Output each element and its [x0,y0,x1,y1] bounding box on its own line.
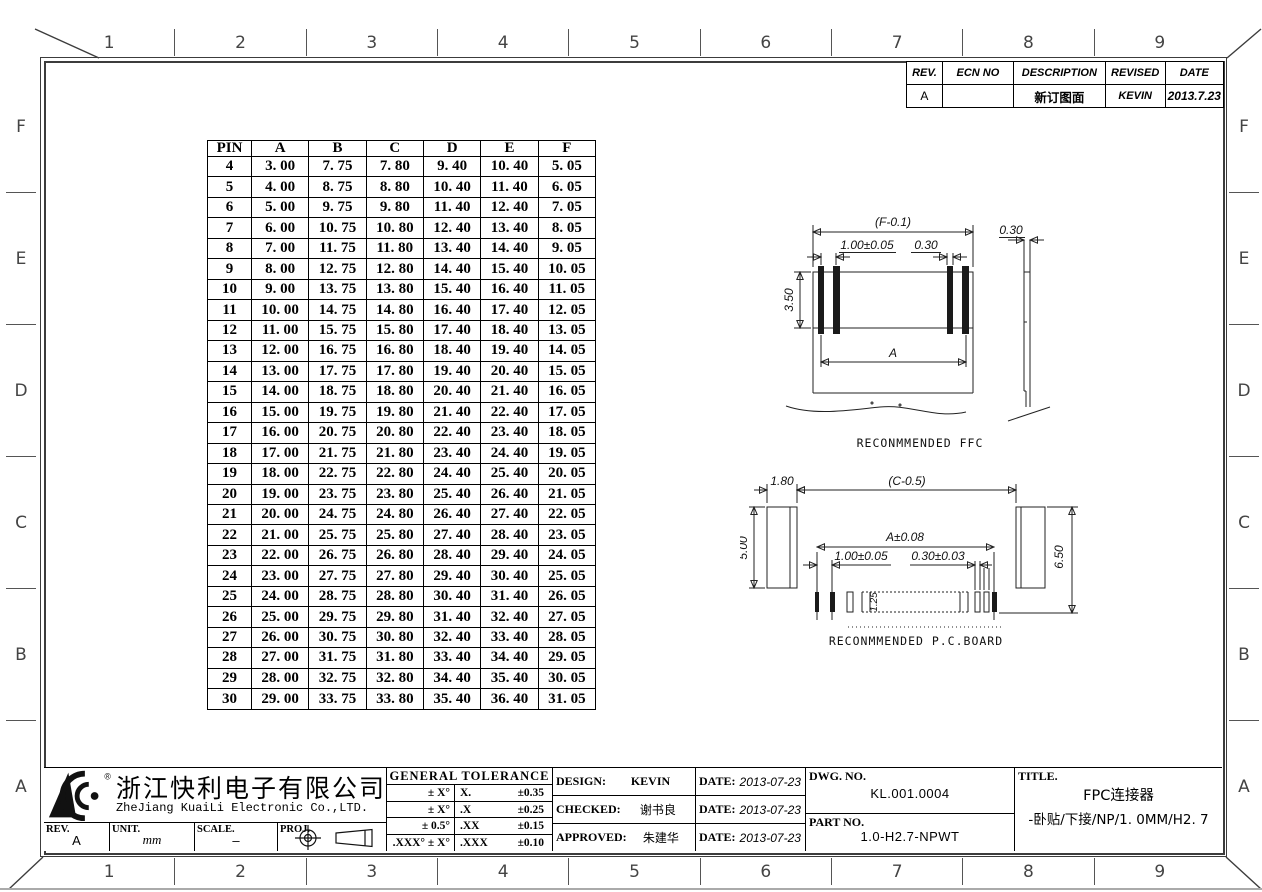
pin-table-row: 3029. 0033. 7533. 8035. 4036. 4031. 05 [208,689,596,710]
tolerance-decimals: .XX [460,820,494,832]
pin-table-cell: 20. 75 [309,423,366,443]
approved-label: APPROVED: [553,830,627,845]
pin-table-cell: 25. 05 [538,566,595,586]
zone-column-label: 6 [701,29,832,56]
pin-table-cell: 24. 40 [423,464,480,484]
pin-table-cell: 11 [208,300,252,320]
unit-cell: UNIT. mm [110,823,195,851]
zone-column-label: 4 [438,858,569,885]
pin-table-cell: 19. 75 [309,402,366,422]
pin-table-cell: 10. 00 [252,300,309,320]
zone-column-label: 7 [832,29,963,56]
pin-table-cell: 26. 80 [366,545,423,565]
revision-column-header: DATE [1165,62,1223,85]
pin-table-cell: 28. 00 [252,668,309,688]
pin-table-cell: 27 [208,627,252,647]
design-date: 2013-07-23 [735,775,805,789]
pcb-total-height-dim: 6.50 [1052,545,1066,569]
title-label: TITLE. [1018,769,1058,784]
pin-table-cell: 28. 40 [481,525,538,545]
pcb-overall-dim: (C-0.5) [888,474,925,488]
scale-cell: SCALE. – [195,823,278,851]
pin-table-cell: 15. 00 [252,402,309,422]
pin-table-cell: 7. 00 [252,238,309,258]
pin-table-row: 2625. 0029. 7529. 8031. 4032. 4027. 05 [208,607,596,627]
zone-row-label: D [6,325,36,457]
pin-table-cell: 28 [208,648,252,668]
company-logo-icon: ® [46,769,116,821]
pin-table-cell: 22. 40 [423,423,480,443]
pin-table-cell: 14. 05 [538,341,595,361]
pcb-figure-caption: RECONMMENDED P.C.BOARD [829,634,1003,648]
pin-table-cell: 20. 40 [423,382,480,402]
projection-cell: PROJ. [278,823,386,851]
date-label: DATE: [696,774,735,789]
zone-column-label: 8 [963,858,1094,885]
revision-cell: 2013.7.23 [1165,85,1223,108]
pin-table-cell: 13 [208,341,252,361]
pin-table-cell: 25. 00 [252,607,309,627]
pin-table-cell: 21. 80 [366,443,423,463]
zone-ruler-top: 123456789 [44,29,1225,56]
checked-label: CHECKED: [553,802,621,817]
pin-table-cell: 23. 00 [252,566,309,586]
pin-table-cell: 19. 80 [366,402,423,422]
pcb-pad-width-dim: 0.30±0.03 [911,549,965,563]
pin-table-cell: 29. 05 [538,648,595,668]
pin-table-cell: 21. 05 [538,484,595,504]
pin-table-cell: 25 [208,586,252,606]
pin-table-cell: 21. 00 [252,525,309,545]
pin-table-cell: 12. 40 [423,218,480,238]
ffc-span-dim: A [888,346,897,360]
pin-table-cell: 18. 00 [252,464,309,484]
revision-column-header: DESCRIPTION [1013,62,1105,85]
pin-table-cell: 27. 75 [309,566,366,586]
pin-table-cell: 5. 05 [538,157,595,177]
checked-date: 2013-07-23 [735,803,805,817]
zone-ruler-right: FEDCBA [1229,61,1259,852]
title-block: ® 浙江快利电子有限公司 ZheJiang KuaiLi Electronic … [44,767,1222,851]
pin-table-cell: 16. 75 [309,341,366,361]
pin-table-cell: 31. 75 [309,648,366,668]
pin-table-cell: 15. 40 [423,279,480,299]
pin-table-row: 109. 0013. 7513. 8015. 4016. 4011. 05 [208,279,596,299]
pin-table-row: 2827. 0031. 7531. 8033. 4034. 4029. 05 [208,648,596,668]
tolerance-row: ± 0.5°.XX±0.15 [387,817,552,834]
pin-table-cell: 6. 05 [538,177,595,197]
pin-table-cell: 16. 05 [538,382,595,402]
pin-table-cell: 33. 80 [366,689,423,710]
pcb-end-width-dim: 1.80 [770,474,794,488]
pin-table-row: 87. 0011. 7511. 8013. 4014. 409. 05 [208,238,596,258]
pin-table-cell: 27. 00 [252,648,309,668]
zone-row-label: F [1229,61,1259,193]
tolerance-value: ±0.25 [494,804,552,816]
pin-table-row: 2322. 0026. 7526. 8028. 4029. 4024. 05 [208,545,596,565]
pin-table-cell: 8. 80 [366,177,423,197]
pin-table-cell: 26 [208,607,252,627]
pin-header-row: PINABCDEF [208,141,596,157]
pin-table-cell: 17 [208,423,252,443]
tolerance-title: GENERAL TOLERANCE [387,768,552,784]
pcb-pad-length-dim: 1.25 [869,592,880,612]
revision-header-row: REV.ECN NODESCRIPTIONREVISEDDATE [907,62,1224,85]
pin-table-cell: 33. 75 [309,689,366,710]
pin-table-cell: 20 [208,484,252,504]
zone-row-label: D [1229,325,1259,457]
zone-column-label: 3 [307,29,438,56]
pin-table-cell: 10. 75 [309,218,366,238]
zone-row-label: A [6,721,36,852]
tolerance-row: ± X°.X±0.25 [387,801,552,818]
pin-table-cell: 11. 40 [481,177,538,197]
drawing-title-block: TITLE. FPC连接器 -卧贴/下接/NP/1. 0MM/H2. 7 [1015,768,1222,851]
pin-table-row: 76. 0010. 7510. 8012. 4013. 408. 05 [208,218,596,238]
dwg-no-cell: DWG. NO. KL.001.0004 [806,768,1014,814]
dwg-no-value: KL.001.0004 [806,786,1014,801]
zone-column-label: 2 [175,858,306,885]
zone-row-label: F [6,61,36,193]
pin-table-cell: 5 [208,177,252,197]
pin-table-cell: 17. 40 [423,320,480,340]
pin-table-cell: 20. 80 [366,423,423,443]
zone-ruler-left: FEDCBA [6,61,36,852]
pin-table-cell: 15 [208,382,252,402]
pin-table-cell: 17. 40 [481,300,538,320]
pin-table-cell: 13. 80 [366,279,423,299]
pin-table-cell: 18. 05 [538,423,595,443]
pin-table-cell: 23. 75 [309,484,366,504]
pin-table-cell: 27. 40 [481,504,538,524]
pin-table-cell: 35. 40 [481,668,538,688]
pin-table-row: 54. 008. 758. 8010. 4011. 406. 05 [208,177,596,197]
pin-table-cell: 22. 00 [252,545,309,565]
pin-table-cell: 19. 05 [538,443,595,463]
pin-table-cell: 23 [208,545,252,565]
pin-table-cell: 12. 05 [538,300,595,320]
pin-table-cell: 9. 00 [252,279,309,299]
pin-table-cell: 17. 80 [366,361,423,381]
pin-table-cell: 32. 75 [309,668,366,688]
pin-table-cell: 23. 40 [423,443,480,463]
pin-table-cell: 12. 00 [252,341,309,361]
revision-cell: KEVIN [1105,85,1165,108]
tolerance-value: ±0.15 [494,820,552,832]
pin-table-cell: 24. 80 [366,504,423,524]
pin-column-header: F [538,141,595,157]
pin-table-cell: 31. 05 [538,689,595,710]
pin-table-cell: 34. 40 [481,648,538,668]
pin-table-cell: 23. 80 [366,484,423,504]
pin-table-cell: 25. 75 [309,525,366,545]
pin-table-cell: 24. 05 [538,545,595,565]
pin-table-cell: 26. 05 [538,586,595,606]
pin-table-cell: 21. 40 [481,382,538,402]
pin-table-row: 1817. 0021. 7521. 8023. 4024. 4019. 05 [208,443,596,463]
date-label: DATE: [696,802,735,817]
pin-table-cell: 14. 40 [481,238,538,258]
pin-dimension-table: PINABCDEF 43. 007. 757. 809. 4010. 405. … [207,140,596,710]
pin-table-row: 1918. 0022. 7522. 8024. 4025. 4020. 05 [208,464,596,484]
pin-table-cell: 26. 40 [423,504,480,524]
pin-table-row: 1110. 0014. 7514. 8016. 4017. 4012. 05 [208,300,596,320]
pin-table-cell: 36. 40 [481,689,538,710]
pin-table-cell: 9. 40 [423,157,480,177]
pin-table-cell: 13. 40 [423,238,480,258]
pin-table-cell: 3. 00 [252,157,309,177]
pin-table-cell: 5. 00 [252,197,309,217]
tolerance-row: .XXX° ± X°.XXX±0.10 [387,834,552,851]
pin-table-cell: 26. 75 [309,545,366,565]
pin-column-header: E [481,141,538,157]
pin-table-cell: 29. 40 [423,566,480,586]
design-label: DESIGN: [553,774,606,789]
pin-table-cell: 8 [208,238,252,258]
pin-table-cell: 12. 80 [366,259,423,279]
zone-column-label: 7 [832,858,963,885]
zone-row-label: B [6,589,36,721]
pin-table-row: 2221. 0025. 7525. 8027. 4028. 4023. 05 [208,525,596,545]
pin-table-row: 1514. 0018. 7518. 8020. 4021. 4016. 05 [208,382,596,402]
tolerance-decimals: X. [460,787,494,799]
zone-ruler-bottom: 123456789 [44,858,1225,885]
pin-table-cell: 10. 05 [538,259,595,279]
pin-table-cell: 14. 80 [366,300,423,320]
pin-table-row: 1312. 0016. 7516. 8018. 4019. 4014. 05 [208,341,596,361]
pin-table-cell: 31. 40 [481,586,538,606]
zone-column-label: 1 [44,858,175,885]
pin-table-cell: 29. 00 [252,689,309,710]
tolerance-angle: .XXX° ± X° [387,835,455,851]
pin-table-cell: 17. 00 [252,443,309,463]
pin-table-cell: 11. 75 [309,238,366,258]
pin-table-row: 2524. 0028. 7528. 8030. 4031. 4026. 05 [208,586,596,606]
pin-table-cell: 16. 40 [423,300,480,320]
pin-table-cell: 18. 80 [366,382,423,402]
recommended-pcb-figure: 1.80 (C-0.5) 5.00 6.50 A±0.08 1.00±0.05 … [740,458,1100,663]
pin-table-cell: 15. 40 [481,259,538,279]
tolerance-decimals: .XXX [460,837,494,849]
ffc-thickness-dim: 0.30 [999,223,1023,237]
pin-table-cell: 25. 40 [423,484,480,504]
ffc-overall-dim: (F-0.1) [875,215,911,229]
part-no-value: 1.0-H2.7-NPWT [806,829,1014,844]
pin-table-cell: 4. 00 [252,177,309,197]
approved-date: 2013-07-23 [735,831,805,845]
tolerance-angle: ± X° [387,802,455,818]
rev-cell: REV. A [44,823,110,851]
pin-table-cell: 28. 40 [423,545,480,565]
company-block: ® 浙江快利电子有限公司 ZheJiang KuaiLi Electronic … [44,768,387,851]
zone-column-label: 6 [701,858,832,885]
zone-row-label: C [6,457,36,589]
pin-table-cell: 19 [208,464,252,484]
revision-column-header: REVISED [1105,62,1165,85]
pin-table-row: 1716. 0020. 7520. 8022. 4023. 4018. 05 [208,423,596,443]
signoff-block: DESIGN: KEVIN DATE: 2013-07-23 CHECKED: … [553,768,806,851]
pin-table-cell: 23. 40 [481,423,538,443]
pin-table-cell: 27. 40 [423,525,480,545]
pin-table-cell: 29. 75 [309,607,366,627]
pin-table-cell: 6 [208,197,252,217]
pin-table-row: 2120. 0024. 7524. 8026. 4027. 4022. 05 [208,504,596,524]
zone-column-label: 8 [963,29,1094,56]
zone-column-label: 4 [438,29,569,56]
pin-table-cell: 11. 05 [538,279,595,299]
pin-table-cell: 28. 80 [366,586,423,606]
pin-column-header: C [366,141,423,157]
pin-table-row: 43. 007. 757. 809. 4010. 405. 05 [208,157,596,177]
pin-table-cell: 18. 40 [481,320,538,340]
pin-table-cell: 14 [208,361,252,381]
zone-row-label: C [1229,457,1259,589]
pin-table-cell: 21. 75 [309,443,366,463]
pin-table-cell: 18. 40 [423,341,480,361]
tolerance-rows: ± X°X.±0.35± X°.X±0.25± 0.5°.XX±0.15.XXX… [387,784,552,851]
drawing-title-line2: -卧贴/下接/NP/1. 0MM/H2. 7 [1015,808,1222,828]
pin-table-cell: 33. 40 [481,627,538,647]
pin-table-cell: 30. 05 [538,668,595,688]
pin-table-cell: 33. 40 [423,648,480,668]
drawing-title-line1: FPC连接器 [1015,784,1222,805]
pin-table-cell: 30. 40 [481,566,538,586]
revision-column-header: ECN NO [942,62,1013,85]
pin-table-cell: 30. 75 [309,627,366,647]
checked-value: 谢书良 [621,801,695,818]
pin-table-cell: 12. 75 [309,259,366,279]
pin-table-cell: 30. 80 [366,627,423,647]
approved-value: 朱建华 [627,829,695,846]
pin-table-cell: 25. 40 [481,464,538,484]
pin-table-cell: 17. 05 [538,402,595,422]
pin-table-cell: 7 [208,218,252,238]
pin-table-cell: 19. 40 [481,341,538,361]
pin-table-cell: 16 [208,402,252,422]
pin-table-cell: 29. 80 [366,607,423,627]
pin-table-cell: 10. 40 [423,177,480,197]
pin-table-cell: 22. 05 [538,504,595,524]
tolerance-value: ±0.35 [494,787,552,799]
pin-table-row: 98. 0012. 7512. 8014. 4015. 4010. 05 [208,259,596,279]
pin-table-cell: 8. 75 [309,177,366,197]
pin-table-cell: 4 [208,157,252,177]
pin-table-cell: 13. 40 [481,218,538,238]
registered-mark: ® [104,771,111,781]
pin-table-cell: 17. 75 [309,361,366,381]
zone-column-label: 3 [307,858,438,885]
pin-table-cell: 13. 05 [538,320,595,340]
pin-column-header: D [423,141,480,157]
pin-table-cell: 9 [208,259,252,279]
pin-table-row: 65. 009. 759. 8011. 4012. 407. 05 [208,197,596,217]
pin-table-cell: 32. 40 [423,627,480,647]
pin-table-cell: 24 [208,566,252,586]
pin-table-cell: 15. 80 [366,320,423,340]
pin-table-cell: 13. 00 [252,361,309,381]
pin-table-cell: 18 [208,443,252,463]
pin-table-cell: 9. 75 [309,197,366,217]
pin-table-cell: 10. 40 [481,157,538,177]
pin-column-header: B [309,141,366,157]
pin-table-cell: 8. 05 [538,218,595,238]
tolerance-value: ±0.10 [494,837,552,849]
pin-table-cell: 24. 40 [481,443,538,463]
pin-table-cell: 32. 80 [366,668,423,688]
unit-value: mm [110,832,194,848]
pcb-span-dim: A±0.08 [885,530,924,544]
pin-table-cell: 14. 00 [252,382,309,402]
pin-table-cell: 14. 40 [423,259,480,279]
pin-table-cell: 10. 80 [366,218,423,238]
pin-table-cell: 20. 05 [538,464,595,484]
dwg-no-label: DWG. NO. [809,769,866,784]
zone-column-label: 9 [1095,29,1225,56]
pin-table-cell: 26. 40 [481,484,538,504]
ffc-figure-caption: RECONMMENDED FFC [857,436,984,450]
pin-table-cell: 34. 40 [423,668,480,688]
date-label: DATE: [696,830,735,845]
pin-table-cell: 22. 40 [481,402,538,422]
pin-table-cell: 22. 80 [366,464,423,484]
pin-table-cell: 11. 00 [252,320,309,340]
pin-table-cell: 29 [208,668,252,688]
pin-table-cell: 24. 00 [252,586,309,606]
pin-column-header: PIN [208,141,252,157]
pin-table-cell: 13. 75 [309,279,366,299]
pcb-end-height-dim: 5.00 [740,536,750,560]
general-tolerance-block: GENERAL TOLERANCE ± X°X.±0.35± X°.X±0.25… [387,768,553,851]
pin-table-cell: 26. 00 [252,627,309,647]
pin-table-cell: 27. 05 [538,607,595,627]
revision-row: A新订图面KEVIN2013.7.23 [907,85,1224,108]
pin-table-cell: 11. 40 [423,197,480,217]
pin-table-cell: 19. 00 [252,484,309,504]
ffc-conductor-width-dim: 0.30 [914,238,938,252]
design-value: KEVIN [606,774,695,789]
pin-column-header: A [252,141,309,157]
zone-column-label: 9 [1095,858,1225,885]
pin-table-cell: 20. 00 [252,504,309,524]
pin-table-cell: 6. 00 [252,218,309,238]
company-identity: ® 浙江快利电子有限公司 ZheJiang KuaiLi Electronic … [44,768,386,823]
pin-table-cell: 24. 75 [309,504,366,524]
pin-table-cell: 11. 80 [366,238,423,258]
pin-table-cell: 19. 40 [423,361,480,381]
pin-table-cell: 7. 80 [366,157,423,177]
rev-unit-scale-proj-row: REV. A UNIT. mm SCALE. – PROJ. [44,823,386,851]
pin-table-cell: 28. 05 [538,627,595,647]
pin-table-cell: 16. 80 [366,341,423,361]
approved-row: APPROVED: 朱建华 DATE: 2013-07-23 [553,824,805,851]
zone-row-label: E [1229,193,1259,325]
pin-table-cell: 9. 80 [366,197,423,217]
pin-table-row: 1413. 0017. 7517. 8019. 4020. 4015. 05 [208,361,596,381]
pin-table-cell: 30 [208,689,252,710]
part-no-cell: PART NO. 1.0-H2.7-NPWT [806,814,1014,851]
checked-row: CHECKED: 谢书良 DATE: 2013-07-23 [553,796,805,824]
scale-value: – [195,833,277,848]
pin-table-cell: 23. 05 [538,525,595,545]
pin-table-cell: 12 [208,320,252,340]
pin-table-cell: 7. 75 [309,157,366,177]
pin-table-cell: 12. 40 [481,197,538,217]
pin-table-cell: 10 [208,279,252,299]
dwg-part-block: DWG. NO. KL.001.0004 PART NO. 1.0-H2.7-N… [806,768,1015,851]
screen-bottom-edge [0,888,1262,890]
pin-table-cell: 18. 75 [309,382,366,402]
pin-table-cell: 25. 80 [366,525,423,545]
